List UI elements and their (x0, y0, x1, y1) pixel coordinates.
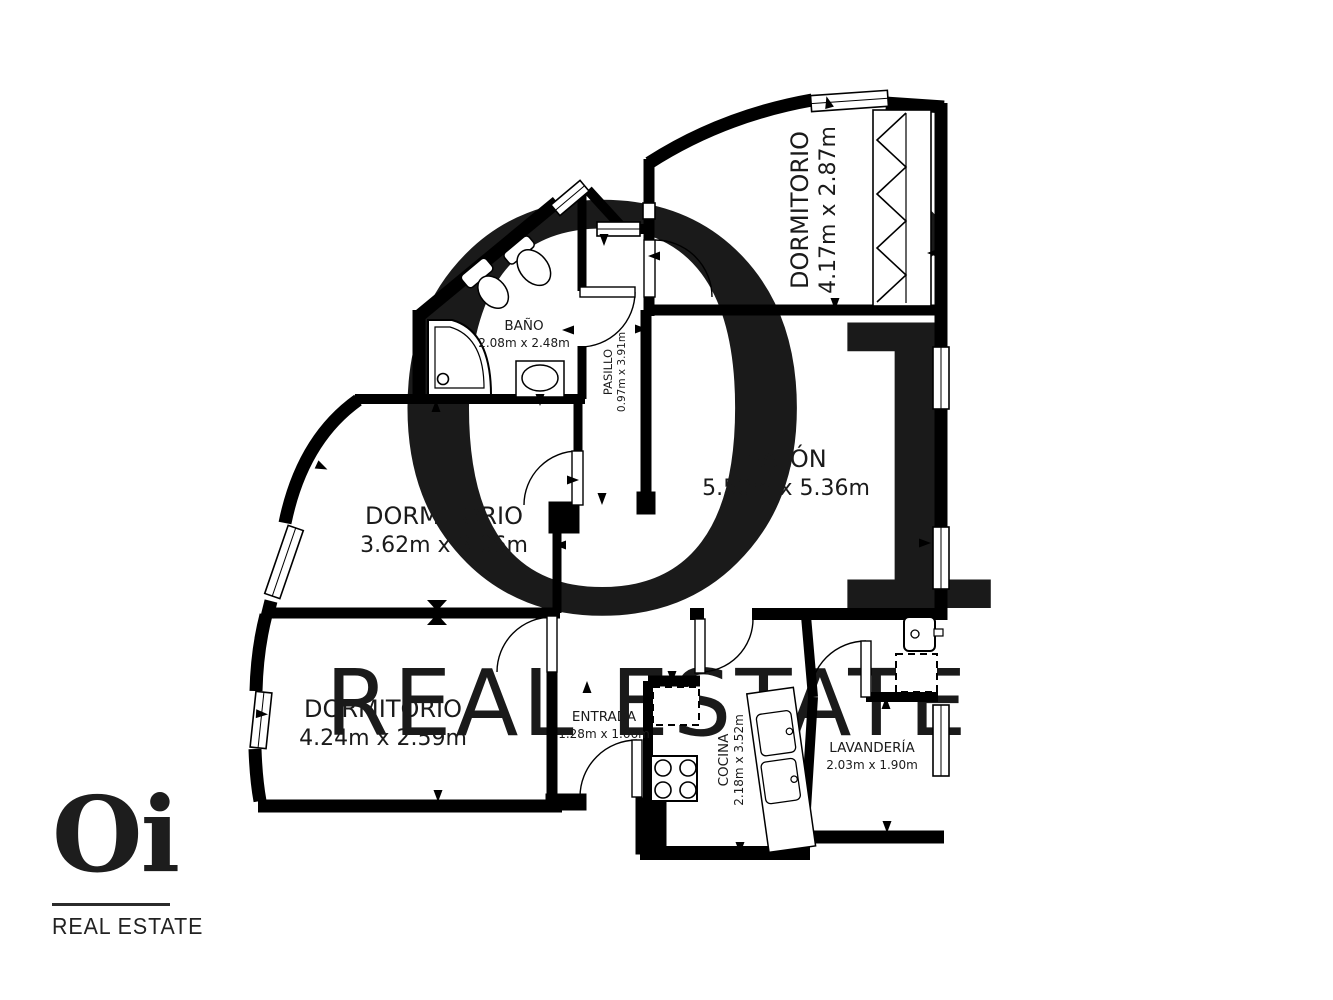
room-dims: 3.62m x 3.06m (360, 533, 528, 558)
room-dims: 2.03m x 1.90m (826, 758, 918, 772)
room-dims: 1.28m x 1.66m (558, 727, 650, 741)
room-dims: 5.50m x 5.36m (702, 476, 870, 501)
washer-placeholder (896, 654, 937, 692)
stove (651, 756, 697, 801)
window (933, 705, 949, 776)
logo-divider (52, 903, 170, 906)
fridge-placeholder (653, 687, 699, 725)
floor-plan: Oi REAL ESTATE (0, 0, 1333, 1000)
room-name: ENTRADA (572, 709, 637, 725)
room-name: DORMITORIO (304, 695, 462, 723)
agency-logo: Oi REAL ESTATE (52, 768, 182, 940)
room-label-dormitorio-top: DORMITORIO 4.17m x 2.87m (786, 126, 841, 294)
room-dims: 0.97m x 3.91m (616, 332, 628, 412)
room-name: DORMITORIO (786, 131, 814, 289)
window (643, 203, 655, 219)
agency-logo-brand: Oi (52, 768, 182, 901)
window (933, 347, 949, 409)
window (265, 525, 304, 598)
room-label-lavanderia: LAVANDERÍA 2.03m x 1.90m (826, 739, 918, 772)
wardrobe (873, 110, 931, 306)
room-name: DORMITORIO (365, 502, 523, 530)
room-name: BAÑO (504, 317, 543, 334)
room-dims: 4.24m x 2.59m (299, 726, 467, 751)
window (933, 527, 949, 589)
room-name: COCINA (716, 733, 732, 787)
room-dims: 2.08m x 2.48m (478, 336, 570, 350)
window (597, 222, 640, 236)
room-dims: 2.18m x 3.52m (732, 714, 746, 806)
agency-logo-subtitle: REAL ESTATE (52, 913, 173, 940)
window (250, 691, 272, 748)
floor-plan-page: Oi REAL ESTATE (0, 0, 1333, 1000)
bathroom-sink (516, 361, 564, 397)
room-dims: 4.17m x 2.87m (816, 126, 841, 294)
room-name: SALÓN (745, 443, 826, 473)
room-name: PASILLO (601, 349, 615, 395)
room-name: LAVANDERÍA (829, 739, 915, 756)
